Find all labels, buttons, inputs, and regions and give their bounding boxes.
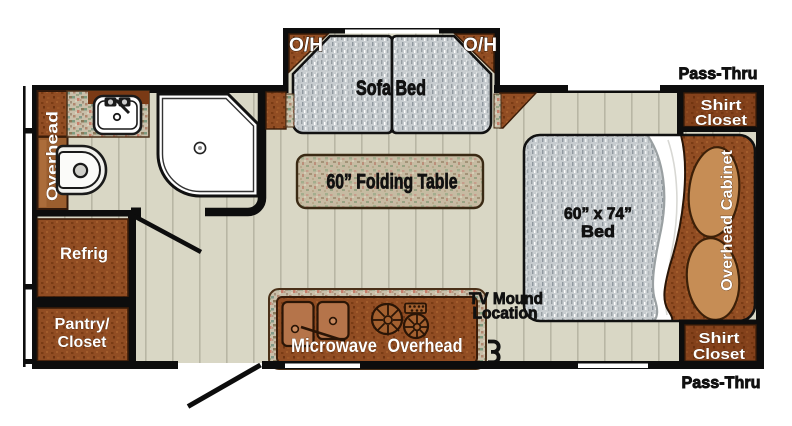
svg-text:60” Folding Table: 60” Folding Table: [327, 170, 458, 194]
svg-text:Pantry/: Pantry/: [55, 316, 111, 333]
svg-text:60” x 74”: 60” x 74”: [564, 204, 632, 223]
svg-text:Bed: Bed: [581, 222, 615, 241]
svg-text:Overhead Cabinet: Overhead Cabinet: [719, 150, 736, 291]
svg-text:Pass-Thru: Pass-Thru: [679, 64, 758, 83]
svg-text:O/H: O/H: [289, 35, 323, 56]
svg-text:Overhead: Overhead: [388, 336, 463, 357]
svg-text:Closet: Closet: [695, 112, 747, 129]
svg-text:Shirt: Shirt: [699, 330, 740, 347]
svg-text:Closet: Closet: [693, 346, 745, 363]
svg-text:Pass-Thru: Pass-Thru: [682, 373, 761, 392]
svg-text:Microwave: Microwave: [291, 336, 377, 357]
svg-text:Location: Location: [473, 305, 538, 323]
svg-text:Sofa Bed: Sofa Bed: [356, 77, 426, 100]
svg-text:O/H: O/H: [463, 35, 497, 56]
svg-text:Closet: Closet: [58, 334, 107, 351]
svg-text:Refrig: Refrig: [60, 244, 108, 263]
